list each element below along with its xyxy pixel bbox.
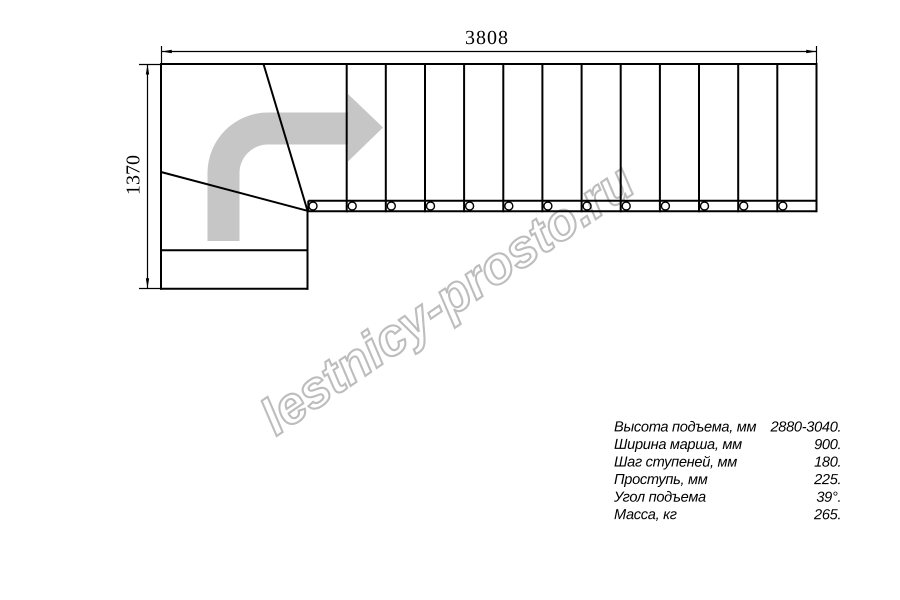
svg-text:2880-3040.: 2880-3040.: [769, 420, 841, 436]
svg-text:Шаг ступеней, мм: Шаг ступеней, мм: [614, 455, 737, 471]
svg-text:39°.: 39°.: [816, 490, 841, 506]
svg-text:Ширина марша, мм: Ширина марша, мм: [614, 437, 742, 453]
svg-text:Высота подъема, мм: Высота подъема, мм: [614, 419, 756, 435]
svg-text:180.: 180.: [814, 455, 841, 471]
svg-text:225.: 225.: [813, 472, 841, 488]
svg-text:3808: 3808: [465, 27, 509, 49]
svg-text:Масса, кг: Масса, кг: [614, 507, 677, 523]
svg-text:Проступь, мм: Проступь, мм: [614, 472, 708, 488]
svg-text:265.: 265.: [813, 507, 841, 523]
svg-text:900.: 900.: [814, 437, 841, 453]
svg-text:1370: 1370: [123, 155, 145, 195]
svg-text:Угол подъема: Угол подъема: [613, 490, 706, 506]
